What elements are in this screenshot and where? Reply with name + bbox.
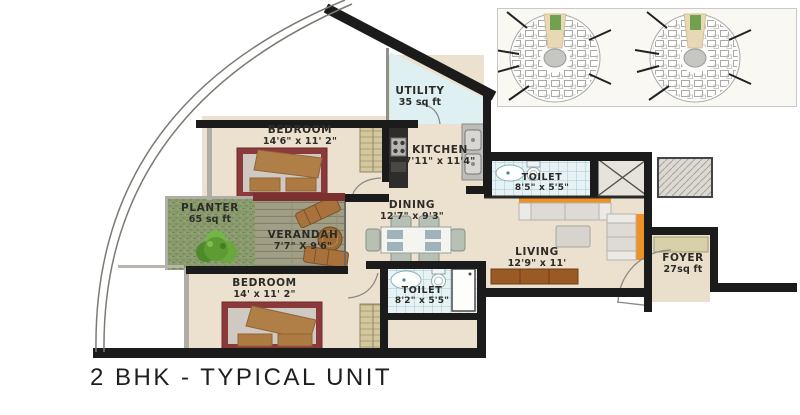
- wall-living-top: [484, 152, 652, 161]
- room-label-toilet-1: TOILET 8'5" x 5'5": [494, 172, 590, 194]
- room-label-planter: PLANTER 65 sq ft: [166, 202, 254, 226]
- room-label-bedroom-1: BEDROOM 14'6" x 11' 2": [230, 124, 370, 148]
- key-plan-box: [497, 8, 797, 107]
- wall-foyer-top: [648, 227, 718, 235]
- wall-corridor: [713, 283, 797, 292]
- wall-utility-bottom: [388, 120, 418, 128]
- room-name: BEDROOM: [192, 277, 337, 289]
- room-dims: 14' x 11' 2": [192, 289, 337, 300]
- room-label-dining: DINING 12'7" x 9'3": [352, 199, 472, 223]
- wall-bottom: [93, 348, 486, 358]
- room-name: TOILET: [494, 172, 590, 183]
- wall-toilet2-right: [477, 261, 486, 353]
- room-dims: 65 sq ft: [166, 214, 254, 225]
- room-name: KITCHEN: [388, 144, 492, 156]
- room-label-bedroom-2: BEDROOM 14' x 11' 2": [192, 277, 337, 301]
- room-name: DINING: [352, 199, 472, 211]
- wall-toilet2-left: [380, 268, 388, 350]
- wall-living-bottom: [477, 288, 652, 297]
- room-label-utility: UTILITY 35 sq ft: [368, 85, 472, 109]
- room-dims: 12'7" x 9'3": [352, 211, 472, 222]
- passage-floor: [388, 318, 477, 350]
- tv-cabinet: [491, 269, 578, 284]
- wall-toilet2-top: [366, 261, 477, 269]
- foyer-shelf: [654, 237, 708, 252]
- room-label-living: LIVING 12'9" x 11': [478, 246, 596, 270]
- duct-box: [658, 158, 712, 197]
- room-dims: 35 sq ft: [368, 97, 472, 108]
- room-name: TOILET: [372, 285, 472, 296]
- room-name: BEDROOM: [230, 124, 370, 136]
- room-dims: 12'9" x 11': [478, 258, 596, 269]
- room-name: LIVING: [478, 246, 596, 258]
- key-plan-tower-2: [635, 12, 751, 102]
- wall-bedroom2-top: [186, 266, 348, 274]
- room-dims: 7'11" x 11'4": [388, 156, 492, 167]
- room-dims: 14'6" x 11' 2": [230, 136, 370, 147]
- verandah-parapet: [253, 193, 345, 201]
- room-label-toilet-2: TOILET 8'2" x 5'5": [372, 285, 472, 307]
- room-dims: 8'5" x 5'5": [494, 183, 590, 194]
- highlighted-unit: [550, 15, 561, 30]
- room-dims: 27sq ft: [638, 264, 728, 275]
- room-dims: 8'2" x 5'5": [372, 296, 472, 307]
- wall-toilet1-shaft: [590, 158, 597, 197]
- room-label-kitchen: KITCHEN 7'11" x 11'4": [388, 144, 492, 168]
- bed-1: [237, 148, 327, 197]
- room-label-foyer: FOYER 27sq ft: [638, 252, 728, 276]
- key-plan-tower-1: [498, 12, 611, 102]
- room-dims: 7'7" X 9'6": [253, 241, 353, 252]
- plan-title: 2 BHK - TYPICAL UNIT: [90, 364, 430, 392]
- bed-2: [222, 302, 322, 350]
- room-name: FOYER: [638, 252, 728, 264]
- wall-toilet2-bottom: [381, 313, 477, 320]
- highlighted-unit: [690, 15, 701, 30]
- coffee-table: [556, 226, 590, 247]
- room-name: UTILITY: [368, 85, 472, 97]
- room-name: PLANTER: [166, 202, 254, 214]
- room-label-verandah: VERANDAH 7'7" X 9'6": [253, 229, 353, 253]
- shaft-box: [597, 158, 648, 197]
- key-plan-drawing: [498, 9, 796, 106]
- room-name: VERANDAH: [253, 229, 353, 241]
- floorplan-page: BEDROOM 14'6" x 11' 2" UTILITY 35 sq ft …: [0, 0, 800, 415]
